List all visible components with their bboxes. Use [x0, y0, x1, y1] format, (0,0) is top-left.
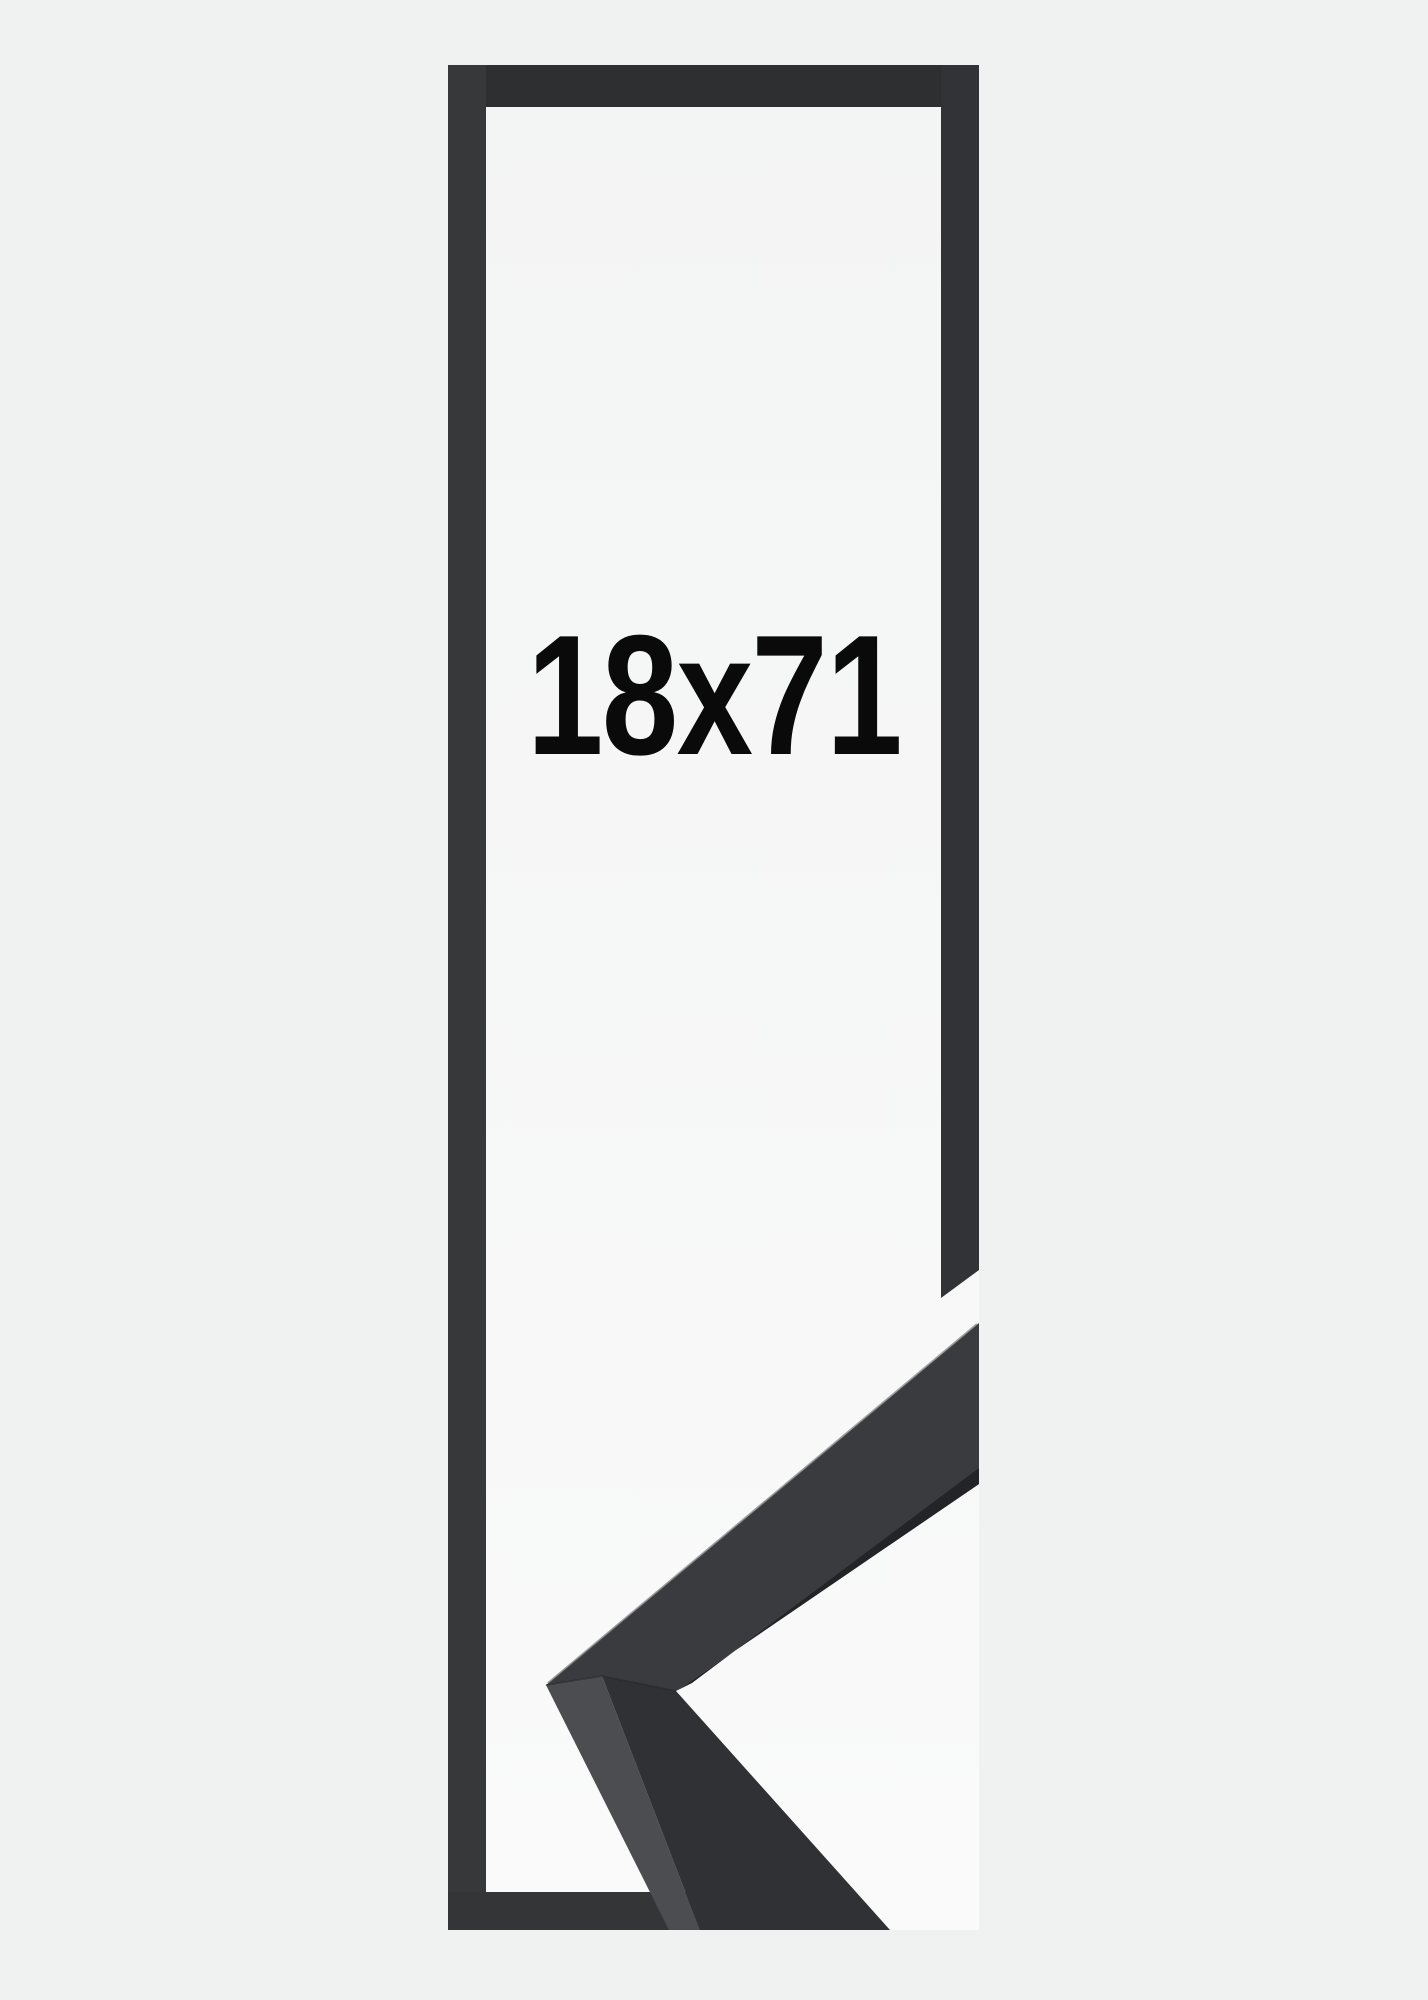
frame-bar-top	[448, 65, 979, 107]
size-label: 18x71	[527, 600, 901, 791]
product-image[interactable]: 18x71	[0, 0, 1428, 2000]
frame-bar-left	[448, 65, 486, 1930]
frame-bar-right	[941, 65, 979, 1298]
